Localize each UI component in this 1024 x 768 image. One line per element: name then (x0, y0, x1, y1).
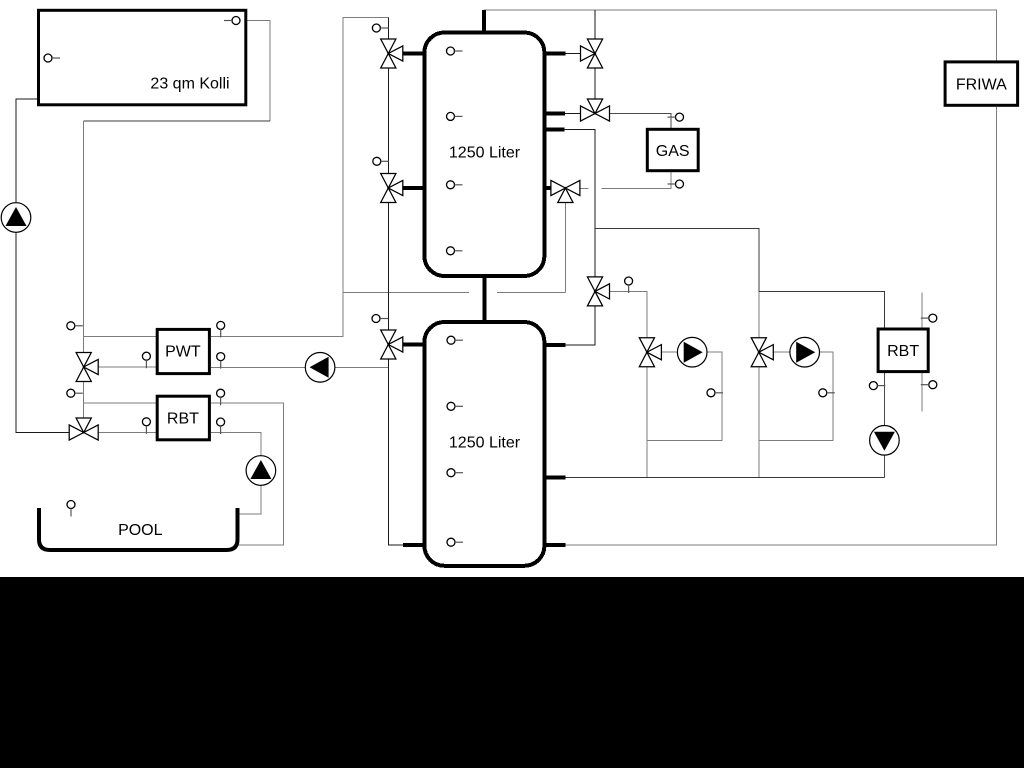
svg-text:PWT: PWT (165, 344, 201, 361)
svg-text:RBT: RBT (887, 343, 919, 360)
svg-text:POOL: POOL (118, 522, 163, 539)
svg-text:1250 Liter: 1250 Liter (449, 435, 521, 452)
svg-text:GAS: GAS (656, 143, 690, 160)
svg-text:1250 Liter: 1250 Liter (449, 144, 521, 161)
svg-text:23 qm Kolli: 23 qm Kolli (150, 76, 229, 93)
svg-text:FRIWA: FRIWA (956, 76, 1007, 93)
svg-text:RBT: RBT (167, 411, 199, 428)
